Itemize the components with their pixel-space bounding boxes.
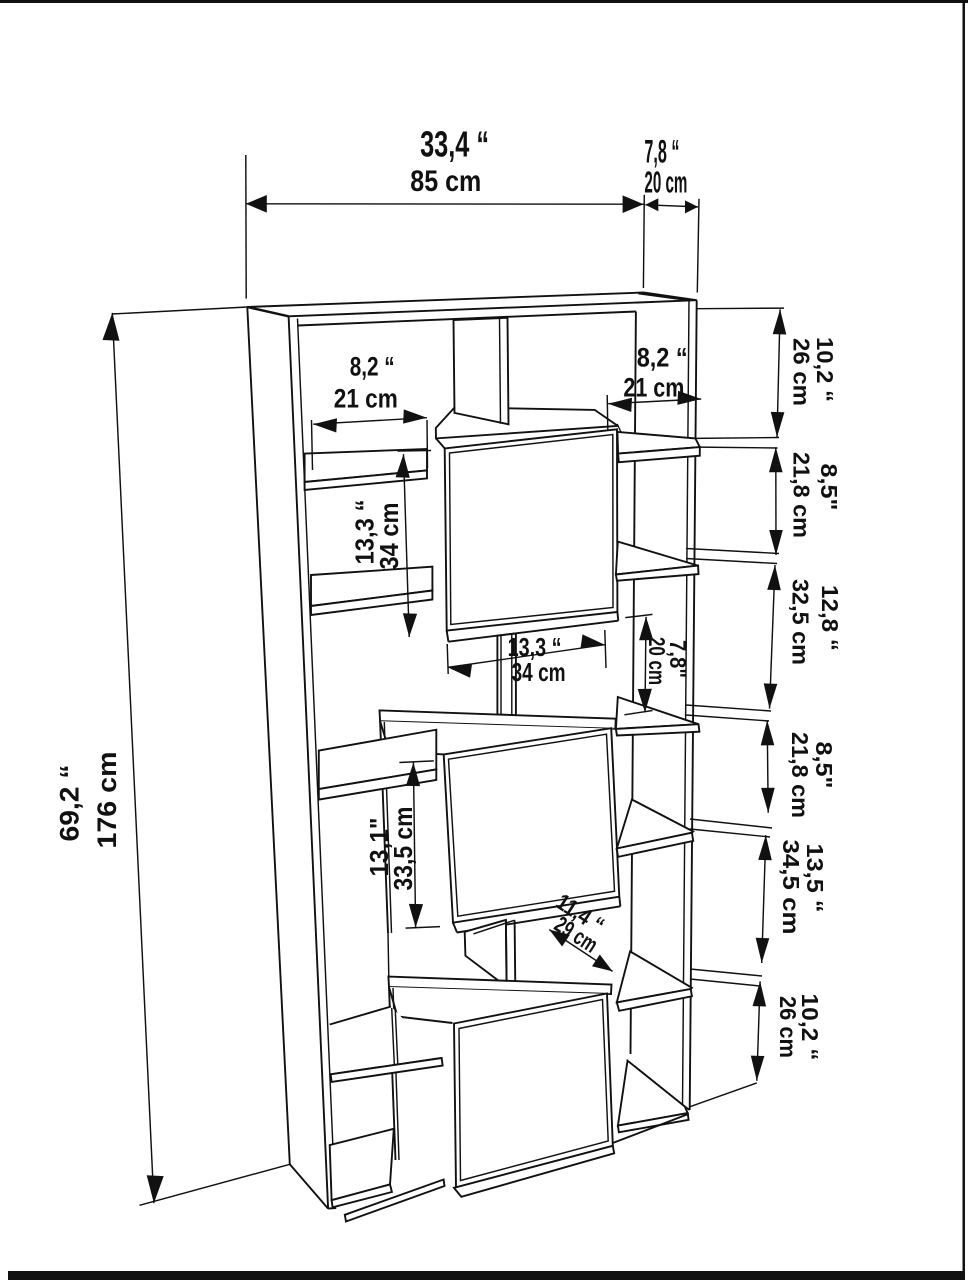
svg-text:10,2 “: 10,2 “ [812,337,838,402]
svg-text:26 cm: 26 cm [788,338,814,406]
svg-text:7,8": 7,8" [665,640,691,678]
svg-text:13,5 “: 13,5 “ [802,844,828,913]
svg-text:26 cm: 26 cm [775,996,801,1058]
svg-text:34 cm: 34 cm [512,657,566,687]
svg-text:8,5": 8,5" [816,464,842,511]
svg-text:176 cm: 176 cm [92,752,122,849]
svg-text:32,5 cm: 32,5 cm [787,579,813,665]
svg-text:21 cm: 21 cm [334,383,398,413]
svg-text:33,5 cm: 33,5 cm [388,807,418,891]
svg-text:34,5 cm: 34,5 cm [778,840,804,935]
svg-text:85 cm: 85 cm [410,165,481,198]
svg-text:8,5": 8,5" [811,742,837,789]
svg-text:34 cm: 34 cm [374,503,404,570]
svg-text:69,2 “: 69,2 “ [55,765,85,842]
svg-text:8,2 “: 8,2 “ [350,351,395,381]
svg-text:21,8 cm: 21,8 cm [787,732,813,818]
svg-text:12,8 “: 12,8 “ [817,585,843,651]
svg-text:20 cm: 20 cm [644,165,687,200]
svg-text:21,8 cm: 21,8 cm [788,452,814,538]
svg-text:21 cm: 21 cm [623,372,684,402]
svg-text:8,2 “: 8,2 “ [637,342,688,372]
svg-text:33,4 “: 33,4 “ [420,124,489,165]
